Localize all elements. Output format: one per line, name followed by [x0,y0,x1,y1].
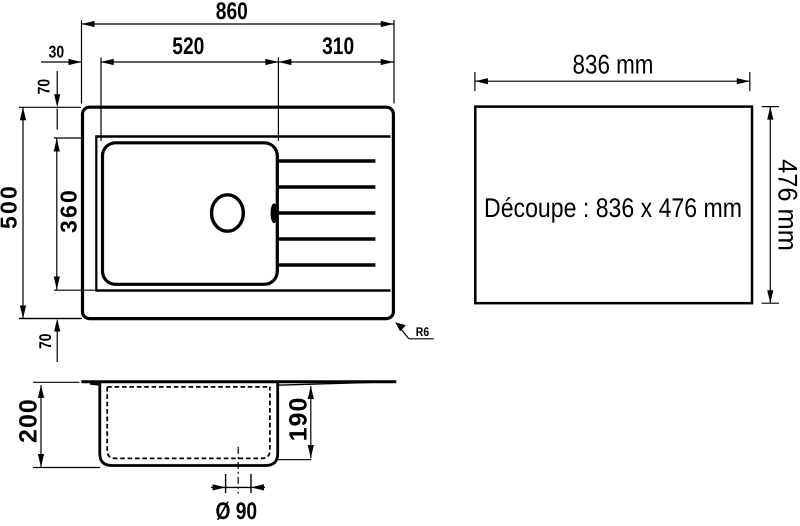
svg-text:200: 200 [15,398,43,443]
svg-text:836 mm: 836 mm [573,50,654,80]
svg-text:Découpe : 836 x 476 mm: Découpe : 836 x 476 mm [484,193,742,223]
svg-text:70: 70 [36,333,55,349]
svg-text:476 mm: 476 mm [772,159,800,251]
svg-text:310: 310 [322,33,354,60]
svg-text:Ø 90: Ø 90 [215,498,257,525]
svg-text:70: 70 [35,79,54,95]
svg-text:500: 500 [0,184,22,229]
svg-text:520: 520 [172,33,204,60]
svg-text:30: 30 [49,43,65,62]
svg-text:190: 190 [285,397,313,442]
svg-text:R6: R6 [416,325,429,339]
svg-text:860: 860 [216,0,248,25]
svg-text:360: 360 [55,188,81,233]
